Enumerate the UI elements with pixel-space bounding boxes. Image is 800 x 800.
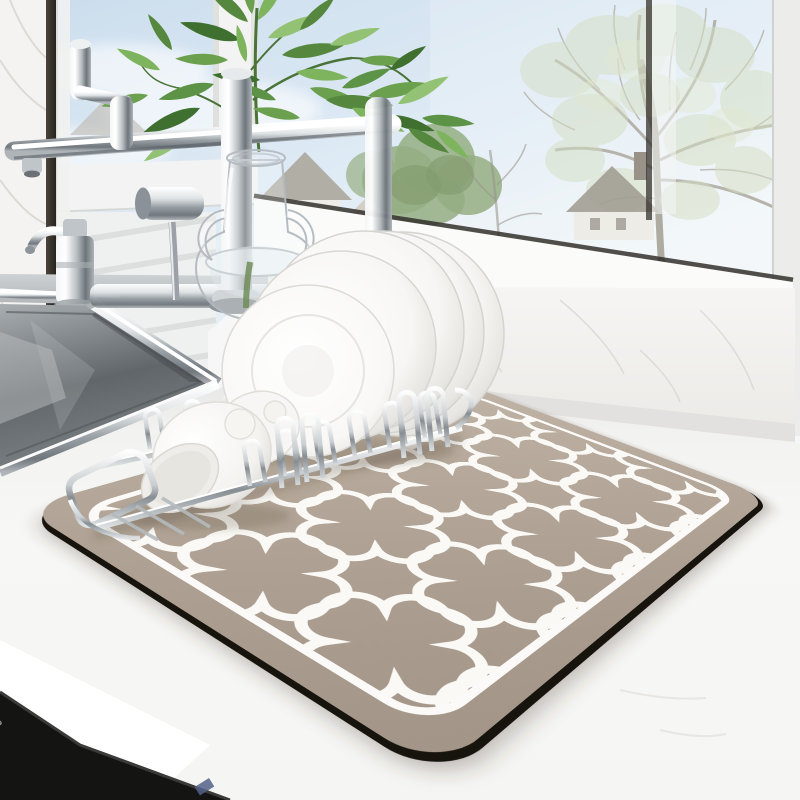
soap-body xyxy=(56,236,94,304)
window-mullion-line xyxy=(646,0,652,220)
product-photo: SOURCE | WAKE xyxy=(0,0,800,800)
faucet-rear-pipe xyxy=(365,97,392,357)
